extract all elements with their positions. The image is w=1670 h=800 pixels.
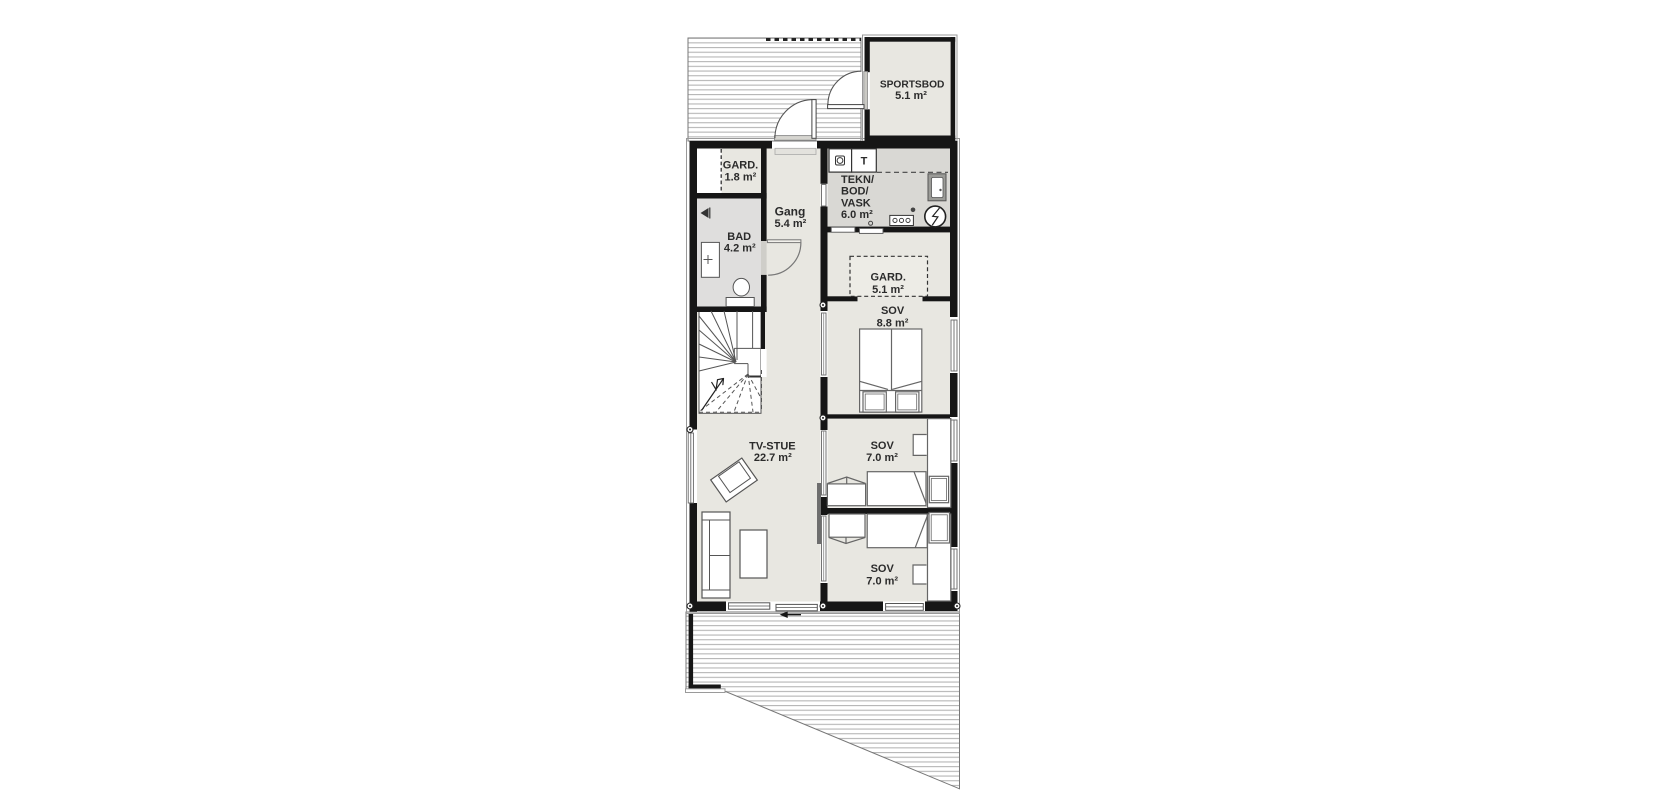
svg-text:SOV: SOV [871,440,895,452]
svg-text:TV-STUE: TV-STUE [749,440,795,452]
svg-text:4.2 m²: 4.2 m² [724,242,756,254]
svg-text:SPORTSBOD: SPORTSBOD [880,79,945,90]
svg-text:SOV: SOV [881,305,905,317]
svg-text:22.7 m²: 22.7 m² [754,452,792,464]
svg-text:7.0 m²: 7.0 m² [866,575,898,587]
svg-text:GARD.: GARD. [870,271,905,283]
svg-text:6.0 m²: 6.0 m² [841,209,873,221]
svg-text:5.4 m²: 5.4 m² [775,218,807,230]
svg-text:Gang: Gang [775,204,806,218]
svg-text:VASK: VASK [841,197,871,209]
svg-text:5.1 m²: 5.1 m² [872,284,904,296]
svg-text:TEKN/: TEKN/ [841,174,874,186]
svg-text:5.1 m²: 5.1 m² [895,90,927,102]
svg-text:SOV: SOV [871,563,895,575]
svg-text:GARD.: GARD. [723,159,758,171]
svg-text:7.0 m²: 7.0 m² [866,452,898,464]
svg-text:BOD/: BOD/ [841,186,869,198]
svg-text:T: T [861,156,868,168]
svg-text:8.8 m²: 8.8 m² [877,317,909,329]
svg-text:1.8 m²: 1.8 m² [725,172,757,184]
svg-text:BAD: BAD [727,231,751,243]
